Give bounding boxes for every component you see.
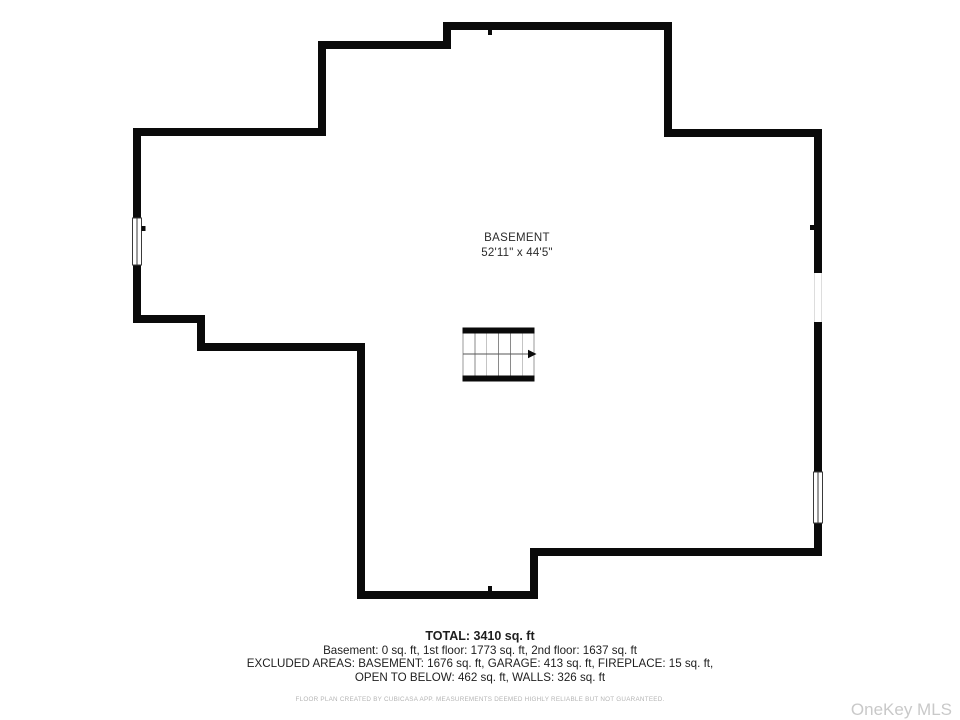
- window-symbol-left: [133, 218, 146, 265]
- disclaimer-text: FLOOR PLAN CREATED BY CUBICASA APP. MEAS…: [0, 696, 960, 703]
- wall-tick-right: [810, 225, 814, 230]
- summary-excluded-line1: EXCLUDED AREAS: BASEMENT: 1676 sq. ft, G…: [0, 657, 960, 671]
- wall-tick-top: [488, 30, 492, 35]
- room-label-block: BASEMENT 52'11" x 44'5": [417, 231, 617, 261]
- watermark-text: OneKey MLS: [851, 700, 952, 720]
- room-dimensions: 52'11" x 44'5": [417, 246, 617, 261]
- summary-floors: Basement: 0 sq. ft, 1st floor: 1773 sq. …: [0, 644, 960, 658]
- area-summary: TOTAL: 3410 sq. ft Basement: 0 sq. ft, 1…: [0, 629, 960, 685]
- room-name: BASEMENT: [417, 231, 617, 246]
- window-symbol-right: [814, 472, 823, 523]
- floor-plan-page: BASEMENT 52'11" x 44'5" TOTAL: 3410 sq. …: [0, 0, 960, 720]
- wall-outline: [137, 26, 818, 595]
- wall-tick-left: [142, 226, 146, 231]
- summary-total: TOTAL: 3410 sq. ft: [0, 629, 960, 644]
- wall-tick-bottom: [488, 586, 492, 591]
- floor-plan-drawing: [0, 0, 960, 720]
- summary-excluded-line2: OPEN TO BELOW: 462 sq. ft, WALLS: 326 sq…: [0, 671, 960, 685]
- stairs-symbol: [463, 328, 537, 382]
